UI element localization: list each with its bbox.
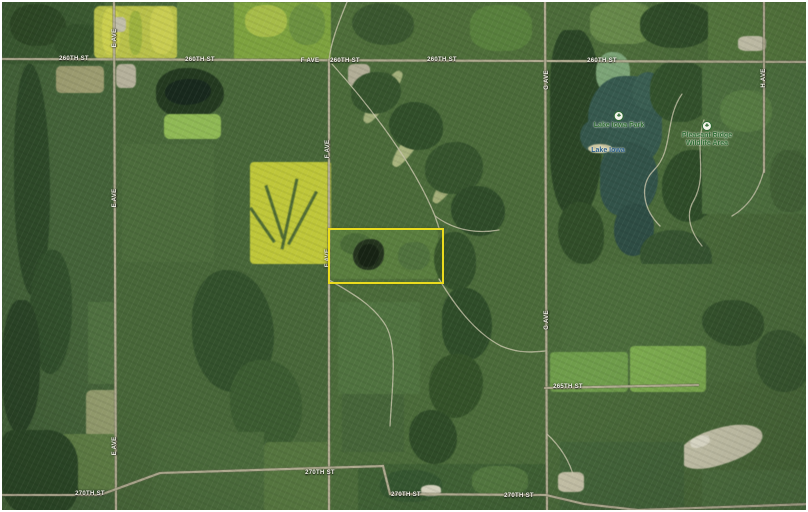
road-label: F AVE [325,140,331,159]
road-label: 260TH ST [587,58,617,64]
road-label: E AVE [112,189,118,208]
lake-iowa-label: Lake Iowa [591,147,624,155]
road-label: G AVE [544,310,550,330]
road-label: E AVE [112,29,118,48]
road-label: 260TH ST [330,58,360,64]
poi-text: Wildlife Area [682,140,732,148]
road-label: G AVE [544,70,550,90]
pleasant-ridge-wildlife-area-label: ♣Pleasant RidgeWildlife Area [682,121,732,149]
tree-icon: ♣ [614,111,624,121]
poi-text: Lake Iowa [591,147,624,155]
road-label: 260TH ST [59,56,89,62]
road-label: 265TH ST [553,384,583,390]
tree-icon: ♣ [702,121,712,131]
road-label: 270TH ST [75,491,105,497]
road-label: F AVE [301,58,320,64]
road-label: H AVE [761,68,767,87]
road-label: 270TH ST [391,492,421,498]
parcel-boundary[interactable] [328,228,444,284]
road-label: 260TH ST [427,57,457,63]
poi-text: Lake Iowa Park [594,122,645,130]
road-label: 270TH ST [504,493,534,499]
road-label: 260TH ST [185,57,215,63]
road-label: 270TH ST [305,470,335,476]
map-canvas[interactable]: 260TH ST260TH STF AVE260TH ST260TH ST260… [0,0,808,512]
road-label: E AVE [112,437,118,456]
lake-iowa-park-label: ♣Lake Iowa Park [594,111,645,130]
